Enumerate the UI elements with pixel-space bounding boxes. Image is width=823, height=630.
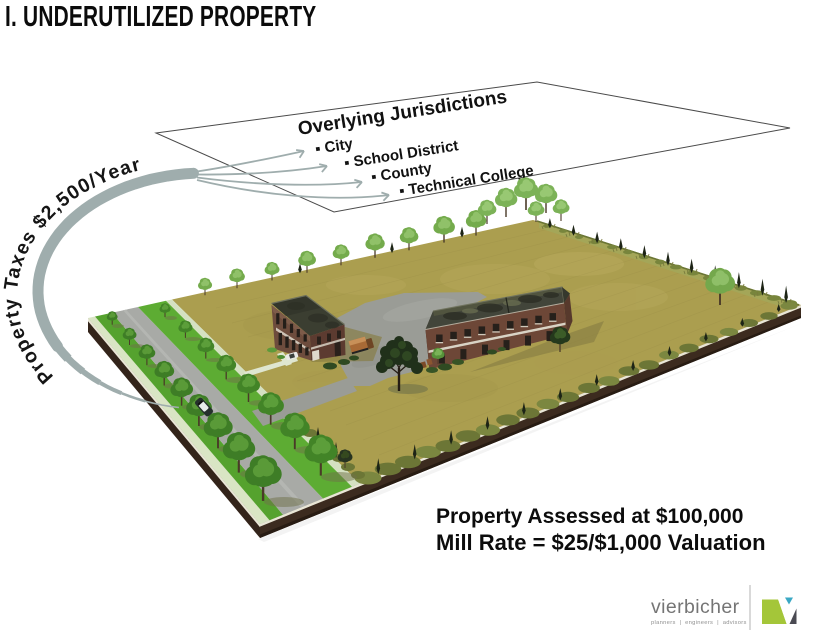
svg-text:I. UNDERUTILIZED PROPERTY: I. UNDERUTILIZED PROPERTY (5, 1, 316, 33)
svg-text:planners | engineers | adv: planners | engineers | advisors (651, 620, 747, 626)
svg-text:Mill Rate = $25/$1,000 Valuati: Mill Rate = $25/$1,000 Valuation (436, 530, 766, 555)
svg-text:vierbicher: vierbicher (651, 596, 740, 618)
svg-text:Property Assessed at $100,000: Property Assessed at $100,000 (436, 505, 743, 528)
